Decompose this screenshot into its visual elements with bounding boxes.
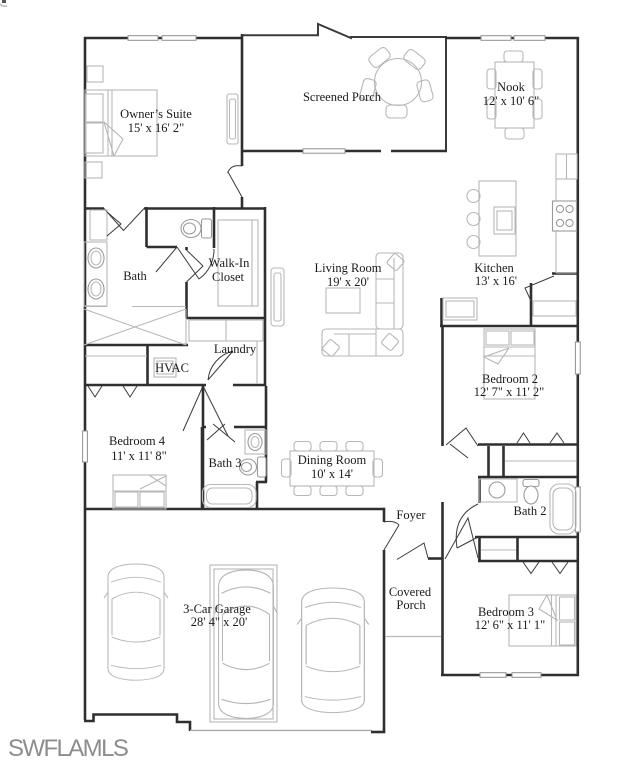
svg-text:28' 4" x 20': 28' 4" x 20' xyxy=(191,615,247,629)
svg-text:Screened Porch: Screened Porch xyxy=(303,90,382,104)
svg-text:Bath 3: Bath 3 xyxy=(209,456,242,470)
svg-text:12' 7" x 11' 2": 12' 7" x 11' 2" xyxy=(474,385,545,399)
svg-text:15' x 16' 2": 15' x 16' 2" xyxy=(128,121,184,135)
svg-text:Living Room: Living Room xyxy=(314,261,381,275)
svg-text:Foyer: Foyer xyxy=(396,508,426,522)
svg-text:SWFLAMLS: SWFLAMLS xyxy=(8,735,128,762)
svg-text:Closet: Closet xyxy=(212,270,244,284)
svg-text:Bedroom 3: Bedroom 3 xyxy=(478,605,534,619)
svg-text:Laundry: Laundry xyxy=(214,342,257,356)
svg-text:13' x 16': 13' x 16' xyxy=(475,274,517,288)
svg-text:Bedroom 4: Bedroom 4 xyxy=(109,434,166,448)
svg-text:19' x 20': 19' x 20' xyxy=(327,275,369,289)
svg-text:3-Car Garage: 3-Car Garage xyxy=(183,602,251,616)
svg-text:Porch: Porch xyxy=(396,598,426,612)
svg-text:Bedroom 2: Bedroom 2 xyxy=(482,372,538,386)
svg-text:Covered: Covered xyxy=(389,585,432,599)
svg-text:Dining Room: Dining Room xyxy=(298,453,367,467)
svg-text:Owner’s Suite: Owner’s Suite xyxy=(120,107,192,121)
svg-text:12' 6" x 11' 1": 12' 6" x 11' 1" xyxy=(475,618,546,632)
svg-text:Bath 2: Bath 2 xyxy=(514,504,547,518)
svg-text:10' x 14': 10' x 14' xyxy=(311,467,353,481)
svg-text:12' x 10' 6": 12' x 10' 6" xyxy=(483,94,539,108)
svg-text:HVAC: HVAC xyxy=(155,361,189,375)
svg-text:Nook: Nook xyxy=(497,80,526,94)
svg-text:Walk-In: Walk-In xyxy=(209,256,250,270)
svg-text:11' x 11' 8": 11' x 11' 8" xyxy=(111,449,167,463)
svg-text:Bath: Bath xyxy=(123,269,147,283)
svg-text:Kitchen: Kitchen xyxy=(474,261,514,275)
